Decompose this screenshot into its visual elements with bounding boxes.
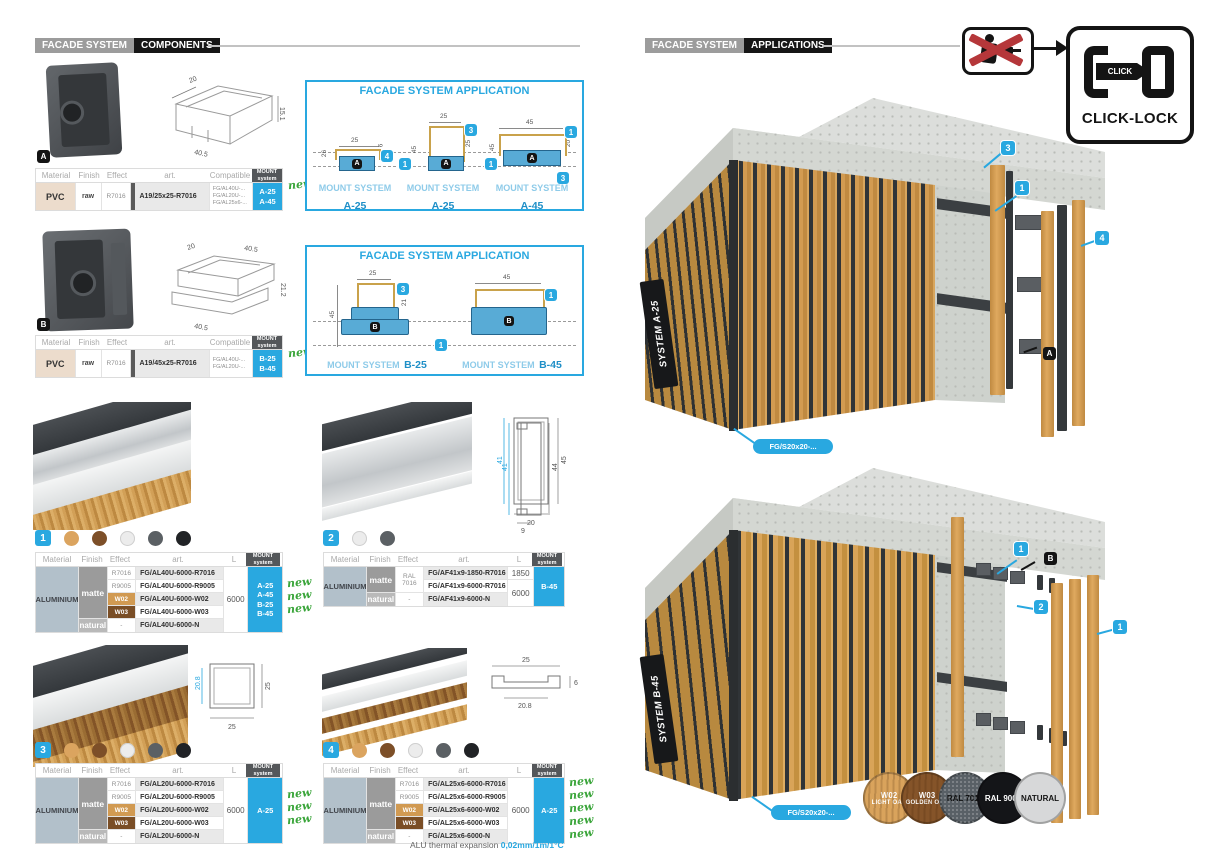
part-label-a: FG/S20x20-... xyxy=(753,439,833,454)
callout: 1 xyxy=(545,289,557,301)
clip-a: A xyxy=(428,156,464,171)
dim: 45 xyxy=(329,311,336,318)
cell-finish: raw xyxy=(76,183,101,210)
cell-mount: B-25B-45 xyxy=(253,350,282,377)
diagram-a3: 45 45 20 A 1 3 xyxy=(489,102,575,178)
cell-mount: A-25A-45B-25B-45 xyxy=(248,567,282,632)
profile1-photo xyxy=(33,402,191,530)
profile2-drawing: 41 44 9 xyxy=(487,415,579,537)
color-dot-light-oak xyxy=(64,531,79,546)
color-dot-golden-oak xyxy=(92,743,107,758)
svg-text:20.8: 20.8 xyxy=(195,676,202,690)
exploded-slat xyxy=(990,165,1005,395)
svg-text:20: 20 xyxy=(188,76,198,85)
clip-b-base: B xyxy=(341,319,409,335)
profile3-table: Material Finish Effect art. L MOUNTsyste… xyxy=(35,763,283,844)
cell-effect: R7016 xyxy=(102,183,131,210)
component-a-table: Material Finish Effect art. Compatible M… xyxy=(35,168,283,211)
profile3-drawing: 20.8 25 25 xyxy=(186,652,278,744)
mount-label-a3: MOUNT SYSTEMA-45 xyxy=(489,178,575,214)
color-dot-light-oak xyxy=(64,743,79,758)
cell-art: A19/25x25-R7016 xyxy=(135,183,208,210)
profile4-drawing: 25 20.8 6 xyxy=(470,650,588,712)
color-dot-gray xyxy=(436,743,451,758)
svg-text:21.2: 21.2 xyxy=(279,283,286,297)
cell-finish-matte: matte xyxy=(79,567,107,619)
part-label-b: FG/S20x20-... xyxy=(771,805,851,820)
left-header-system: FACADE SYSTEM xyxy=(35,38,134,53)
svg-text:20.8: 20.8 xyxy=(518,703,532,710)
profile2-number: 2 xyxy=(323,530,339,546)
swatch-natural: NATURAL xyxy=(1014,772,1066,824)
exploded-rail xyxy=(1057,205,1067,431)
exploded-rail xyxy=(1006,171,1013,389)
exploded-slat xyxy=(1087,575,1099,815)
component-a-drawing: 20 40.5 15.1 xyxy=(138,70,290,166)
right-header: FACADE SYSTEMAPPLICATIONS xyxy=(645,38,832,56)
callout-a: A xyxy=(1043,347,1056,360)
color-dot-golden-oak xyxy=(380,743,395,758)
color-dot-white xyxy=(408,743,423,758)
exploded-slat xyxy=(951,517,964,757)
color-dot-white xyxy=(352,531,367,546)
new-mark: new xyxy=(286,812,312,827)
application-box-b: FACADE SYSTEM APPLICATION 25 45 21 B 3 4… xyxy=(305,245,584,376)
svg-text:25: 25 xyxy=(228,724,236,731)
illustration-system-b45: SYSTEM B-45 1 B 2 1 FG/S20x20-... W02LIG… xyxy=(645,455,1190,855)
svg-text:25: 25 xyxy=(522,657,530,664)
color-dot-golden-oak xyxy=(92,531,107,546)
clip-a: A xyxy=(339,156,375,171)
cell-finish-natural: natural xyxy=(79,619,107,632)
new-mark: new xyxy=(568,826,594,841)
clip-a: A xyxy=(503,150,561,166)
component-b-table: Material Finish Effect art. Compatible M… xyxy=(35,335,283,378)
right-header-section: APPLICATIONS xyxy=(744,38,832,53)
svg-text:40.5: 40.5 xyxy=(194,323,209,332)
svg-text:9: 9 xyxy=(521,528,525,535)
col-effect: Effect xyxy=(102,169,132,182)
col-art: art. xyxy=(132,169,208,182)
profile4-number: 4 xyxy=(323,742,339,758)
catalog-spread: FACADE SYSTEMCOMPONENTS 20 40.5 15.1 A M… xyxy=(0,0,1214,858)
callout-4: 4 xyxy=(1095,231,1109,245)
col-compatible: Compatible xyxy=(208,169,252,182)
color-dot-gray xyxy=(380,531,395,546)
callout-3: 3 xyxy=(1001,141,1015,155)
arrow-line xyxy=(1032,47,1058,50)
callout-1: 1 xyxy=(1014,542,1028,556)
col-mount: MOUNTsystem xyxy=(252,169,282,182)
cell-mount: A-25A-45 xyxy=(253,183,282,210)
application-box-a-title: FACADE SYSTEM APPLICATION xyxy=(307,85,582,97)
callout: 1 xyxy=(565,126,577,138)
callout-1b: 1 xyxy=(1113,620,1127,634)
thermal-expansion-note: ALU thermal expansion 0,02mm/1m/1°C xyxy=(410,840,564,850)
col-material: Material xyxy=(36,169,76,182)
component-b-table-body: PVC raw R7016 A19/45x25-R7016 FG/AL40U-.… xyxy=(36,350,282,377)
exploded-slat xyxy=(1069,579,1081,819)
clip-b-base: B xyxy=(471,307,547,335)
mount-label-b1: MOUNT SYSTEM B-25 xyxy=(317,355,437,373)
callout-shared: 1 xyxy=(435,339,447,351)
application-box-a: FACADE SYSTEM APPLICATION 25 26 6 A 4 1 … xyxy=(305,80,584,211)
exploded-slat xyxy=(1041,211,1054,437)
illustration-system-a25: SYSTEM A-25 3 1 4 A FG/S20x20-... xyxy=(645,85,1190,505)
profile2-variants: 2 xyxy=(323,530,395,546)
dim: 25 xyxy=(351,137,358,144)
col-finish: Finish xyxy=(76,169,102,182)
svg-text:41: 41 xyxy=(502,463,509,471)
color-dot-black xyxy=(464,743,479,758)
callout: 3 xyxy=(397,283,409,295)
left-header: FACADE SYSTEMCOMPONENTS xyxy=(35,38,220,56)
profile1-number: 1 xyxy=(35,530,51,546)
profile1-table: Material Finish Effect art. L MOUNTsyste… xyxy=(35,552,283,633)
mount-label-a2: MOUNT SYSTEMA-25 xyxy=(403,178,483,214)
dim: 21 xyxy=(401,299,408,306)
callout: 4 xyxy=(381,150,393,162)
left-header-rule xyxy=(208,45,580,47)
diagram-a1: 25 26 6 A 4 xyxy=(315,102,395,178)
svg-text:25: 25 xyxy=(265,682,272,690)
callout: 3 xyxy=(465,124,477,136)
dim: 45 xyxy=(503,274,510,281)
cell-art: A19/45x25-R7016 xyxy=(135,350,208,377)
dim: 45 xyxy=(411,146,418,153)
color-dot-gray xyxy=(148,531,163,546)
color-dot-light-oak xyxy=(352,743,367,758)
component-b-drawing: 20 40.5 21.2 40.5 xyxy=(148,236,298,336)
mount-label-a1: MOUNT SYSTEMA-25 xyxy=(315,178,395,214)
cell-material: ALUMINIUM xyxy=(36,567,78,632)
profile3-number: 3 xyxy=(35,742,51,758)
dim: 25 xyxy=(369,270,376,277)
profile2-photo xyxy=(322,402,472,524)
dim: 45 xyxy=(526,119,533,126)
cell-compatible: FG/AL40U-...FG/AL20U-... xyxy=(210,350,252,377)
component-a-badge: A xyxy=(37,150,50,163)
application-box-b-title: FACADE SYSTEM APPLICATION xyxy=(307,250,582,262)
dim: 25 xyxy=(465,140,472,147)
color-dot-white xyxy=(120,531,135,546)
color-dot-gray xyxy=(148,743,163,758)
color-dot-white xyxy=(120,743,135,758)
dim: 45 xyxy=(489,144,496,151)
cell-compatible: FG/AL40U-...FG/AL20U-...FG/AL25x6-... xyxy=(210,183,252,210)
svg-text:40.5: 40.5 xyxy=(244,245,259,254)
component-b-table-head: Material Finish Effect art. Compatible M… xyxy=(36,336,282,350)
svg-text:40.5: 40.5 xyxy=(194,149,209,159)
new-mark: new xyxy=(286,601,312,616)
svg-text:15.1: 15.1 xyxy=(278,107,285,121)
callout-2: 2 xyxy=(1034,600,1048,614)
profile3-variants: 3 xyxy=(35,742,191,758)
right-header-rule xyxy=(822,45,960,47)
mount-label-b2: MOUNT SYSTEM B-45 xyxy=(452,355,572,373)
component-a-table-body: PVC raw R7016 A19/25x25-R7016 FG/AL40U-.… xyxy=(36,183,282,210)
no-drilling-icon xyxy=(962,27,1034,75)
dim: 25 xyxy=(440,113,447,120)
component-a-table-head: Material Finish Effect art. Compatible M… xyxy=(36,169,282,183)
dim: 26 xyxy=(321,150,328,157)
dim: 6 xyxy=(377,144,384,148)
cell-finish: raw xyxy=(76,350,101,377)
color-dot-black xyxy=(176,743,191,758)
profile4-variants: 4 xyxy=(323,742,479,758)
cell-material: PVC xyxy=(36,183,75,210)
profile4-table: Material Finish Effect art. L MOUNTsyste… xyxy=(323,763,565,844)
component-b-rib xyxy=(111,243,128,315)
profile1-variants: 1 xyxy=(35,530,191,546)
cell-length: 6000 xyxy=(224,567,248,632)
profile2-table: Material Finish Effect art. L MOUNTsyste… xyxy=(323,552,565,607)
diagram-b2: 45 B 1 xyxy=(457,263,567,353)
cell-effect: R7016 xyxy=(102,350,131,377)
left-header-section: COMPONENTS xyxy=(134,38,220,53)
component-a-photo xyxy=(46,62,123,158)
callout-b: B xyxy=(1044,552,1057,565)
exploded-slat xyxy=(1072,200,1085,426)
right-header-system: FACADE SYSTEM xyxy=(645,38,744,53)
svg-text:44: 44 xyxy=(552,463,559,471)
callout-1: 1 xyxy=(1015,181,1029,195)
diagram-b1: 25 45 21 B 3 xyxy=(327,263,437,353)
svg-text:20: 20 xyxy=(186,243,196,252)
color-dot-black xyxy=(176,531,191,546)
svg-text:6: 6 xyxy=(574,680,578,687)
component-b-badge: B xyxy=(37,318,50,331)
component-b-photo xyxy=(42,228,133,331)
diagram-a2: 25 45 25 A 3 xyxy=(403,102,483,178)
cell-material: PVC xyxy=(36,350,75,377)
